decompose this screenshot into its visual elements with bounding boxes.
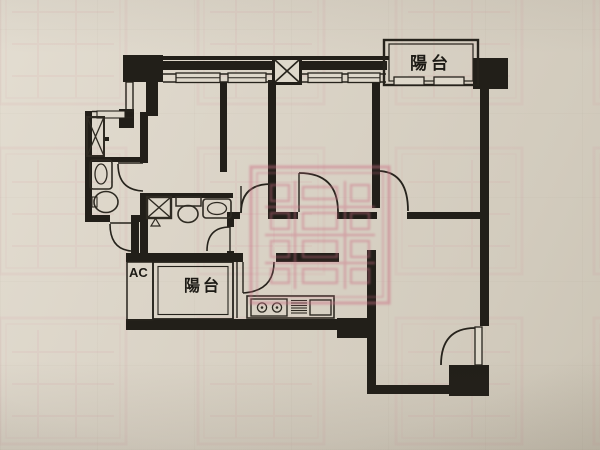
ac-shaft-label: AC — [129, 265, 148, 280]
bathroom2-right-wall-a — [227, 219, 234, 227]
bottom-wall-left — [126, 319, 369, 330]
closet-partition-wall — [220, 82, 227, 172]
floor-plan-photo: 陽台 — [0, 0, 600, 450]
bottom-wall — [367, 385, 451, 394]
top-wall-b — [299, 61, 387, 70]
watermark-seal — [251, 167, 389, 303]
balcony-top-label: 陽台 — [410, 53, 452, 74]
hall-wall-c — [407, 212, 483, 219]
right-wall — [480, 88, 489, 326]
door-leaf — [475, 327, 482, 365]
entry-jamb-wall — [131, 222, 139, 254]
top-left-structural-block — [123, 55, 163, 82]
top-wall-a — [161, 61, 274, 70]
balcony-bottom-label: 陽台 — [184, 276, 222, 295]
bathroom1-right-wall — [140, 112, 148, 163]
floor-plan-svg: 陽台 — [0, 0, 600, 450]
entry-wall-a — [85, 215, 110, 222]
fixture-dot — [105, 137, 109, 141]
window-sill-symbol — [434, 77, 464, 85]
bottom-right-block — [449, 365, 489, 396]
bathroom2-right-wall-b — [227, 251, 234, 262]
window-band-a — [163, 73, 274, 83]
bedroom-divider-wall-2 — [372, 80, 380, 208]
window-sill-symbol — [394, 77, 424, 85]
wall — [146, 80, 158, 116]
